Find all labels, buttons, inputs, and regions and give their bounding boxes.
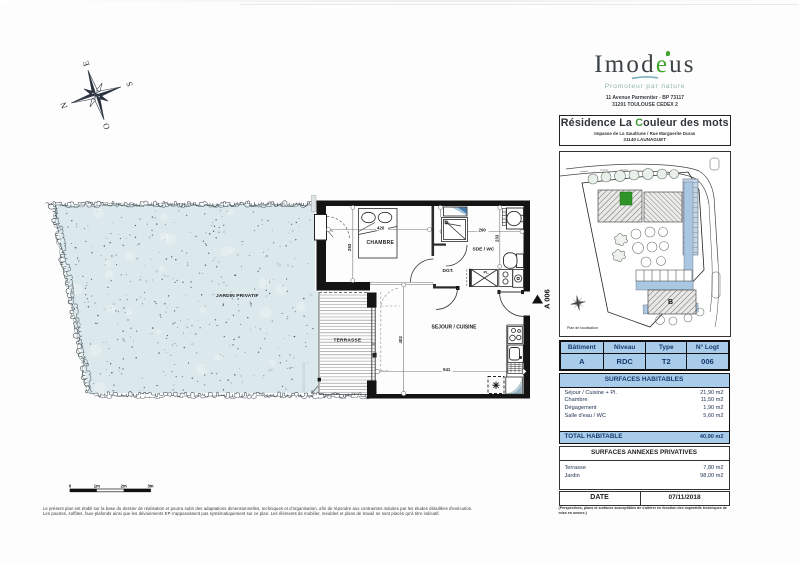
svg-text:B: B bbox=[668, 299, 673, 306]
svg-text:420: 420 bbox=[377, 226, 385, 231]
svg-text:293: 293 bbox=[347, 243, 352, 251]
svg-text:3m: 3m bbox=[147, 483, 153, 488]
svg-text:1m: 1m bbox=[94, 483, 100, 488]
svg-text:SEJOUR / CUISINE: SEJOUR / CUISINE bbox=[432, 325, 478, 331]
svg-text:CHAMBRE: CHAMBRE bbox=[367, 240, 395, 246]
svg-text:E: E bbox=[80, 60, 91, 68]
svg-text:SDE / WC: SDE / WC bbox=[473, 247, 495, 253]
svg-text:233: 233 bbox=[494, 234, 499, 242]
svg-text:TERRASSE: TERRASSE bbox=[334, 338, 362, 344]
svg-text:O: O bbox=[100, 122, 111, 131]
svg-text:2m: 2m bbox=[121, 483, 127, 488]
svg-text:PL.: PL. bbox=[484, 271, 490, 275]
svg-text:541: 541 bbox=[443, 367, 451, 372]
svg-text:0: 0 bbox=[69, 483, 72, 488]
svg-text:S: S bbox=[124, 80, 135, 88]
svg-text:DGT.: DGT. bbox=[443, 268, 454, 274]
svg-text:403: 403 bbox=[398, 336, 403, 344]
svg-text:N: N bbox=[58, 101, 69, 110]
svg-text:A 006: A 006 bbox=[543, 289, 552, 309]
svg-text:Plan de localisation: Plan de localisation bbox=[567, 326, 598, 330]
svg-text:290: 290 bbox=[479, 227, 487, 232]
svg-text:JARDIN PRIVATIF: JARDIN PRIVATIF bbox=[216, 293, 259, 299]
